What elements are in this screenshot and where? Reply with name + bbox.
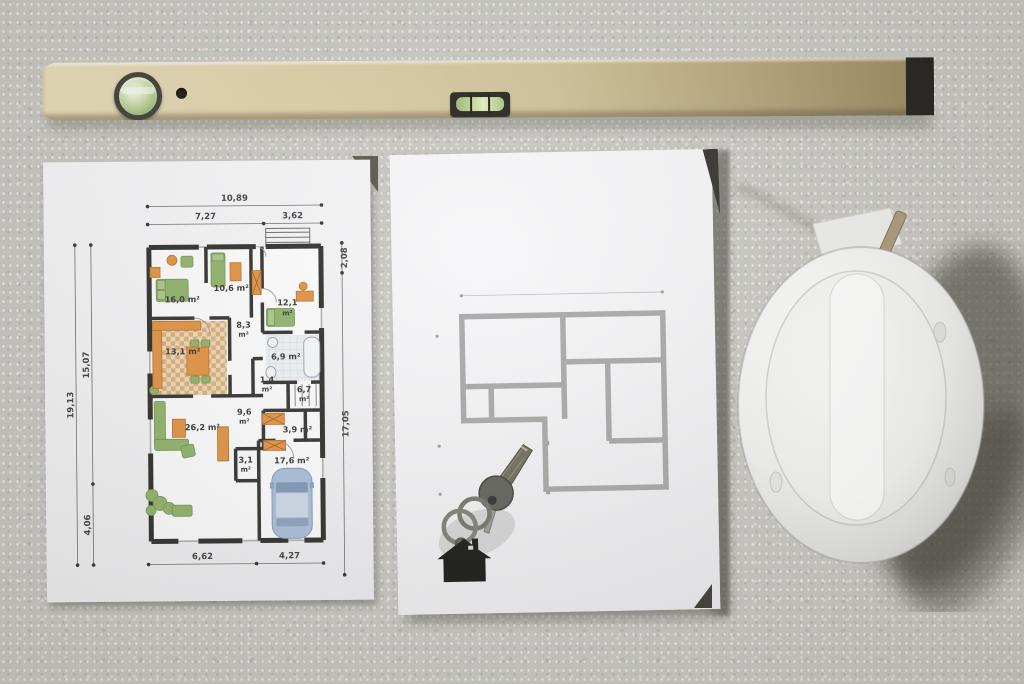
room-area-label: 16,0 m² [165, 294, 201, 304]
room-area-label: 1,4 [260, 374, 275, 384]
level-round-vial [114, 72, 162, 120]
gray-dim-line [461, 292, 662, 296]
level-horizontal-vial [450, 92, 510, 117]
dim-total-width: 10,89 [221, 194, 248, 204]
spirit-level [42, 57, 934, 120]
gray-floor-plan [390, 149, 721, 615]
vial-tick-right [488, 95, 490, 113]
room-area-label: 10,6 m² [214, 283, 250, 293]
color-floor-plan: 10,89 7,27 3,62 19,13 15,07 4,06 2,08 17… [43, 160, 374, 603]
dim-height-upper: 15,07 [82, 351, 92, 378]
room-area-unit: m² [239, 418, 249, 426]
room-area-label: 17,6 m² [274, 455, 310, 465]
house-keys [430, 444, 535, 582]
room-area-label: 6,7 [297, 384, 312, 394]
keychain-window [468, 546, 473, 550]
key-bow [479, 476, 514, 511]
gray-dim-dots [435, 290, 668, 496]
room-area-unit: m² [282, 309, 292, 317]
room-area-label: 26,2 m² [185, 422, 221, 432]
dim-width-left: 7,27 [195, 212, 216, 222]
level-vial-glass [456, 97, 504, 111]
room-area-label: 8,3 [236, 320, 251, 330]
car [270, 468, 315, 538]
gray-walls [462, 313, 666, 491]
room-area-unit: m² [238, 331, 248, 339]
level-end-cap [906, 55, 934, 119]
room-area-unit: m² [299, 395, 309, 403]
room-area-label: 9,6 [237, 407, 252, 417]
room-area-label: 3,1 [238, 455, 253, 465]
color-floor-plan-sheet: 10,89 7,27 3,62 19,13 15,07 4,06 2,08 17… [43, 160, 374, 603]
dim-width-right: 3,62 [282, 211, 303, 221]
room-area-label: 13,1 m² [165, 346, 201, 356]
dim-right-lower: 17,05 [341, 410, 351, 437]
hard-hat [718, 182, 1024, 612]
dim-right-upper: 2,08 [340, 247, 350, 268]
room-area-label: 12,1 [277, 297, 298, 307]
vial-tick-left [470, 95, 472, 113]
room-area-label: 6,9 m² [271, 351, 301, 361]
construction-flatlay-photo: { "scene": { "description": "top-down ph… [0, 0, 1024, 684]
level-hanging-hole [176, 88, 187, 99]
dim-bottom-right: 4,27 [279, 551, 300, 561]
room-area-unit: m² [262, 385, 272, 393]
room-area-label: 3,9 m² [283, 424, 313, 434]
room-area-unit: m² [241, 466, 251, 474]
gray-floor-plan-sheet [390, 149, 721, 615]
dim-height-lower: 4,06 [83, 514, 93, 535]
dim-bottom-left: 6,62 [192, 552, 213, 562]
dim-height-total: 19,13 [66, 392, 76, 419]
